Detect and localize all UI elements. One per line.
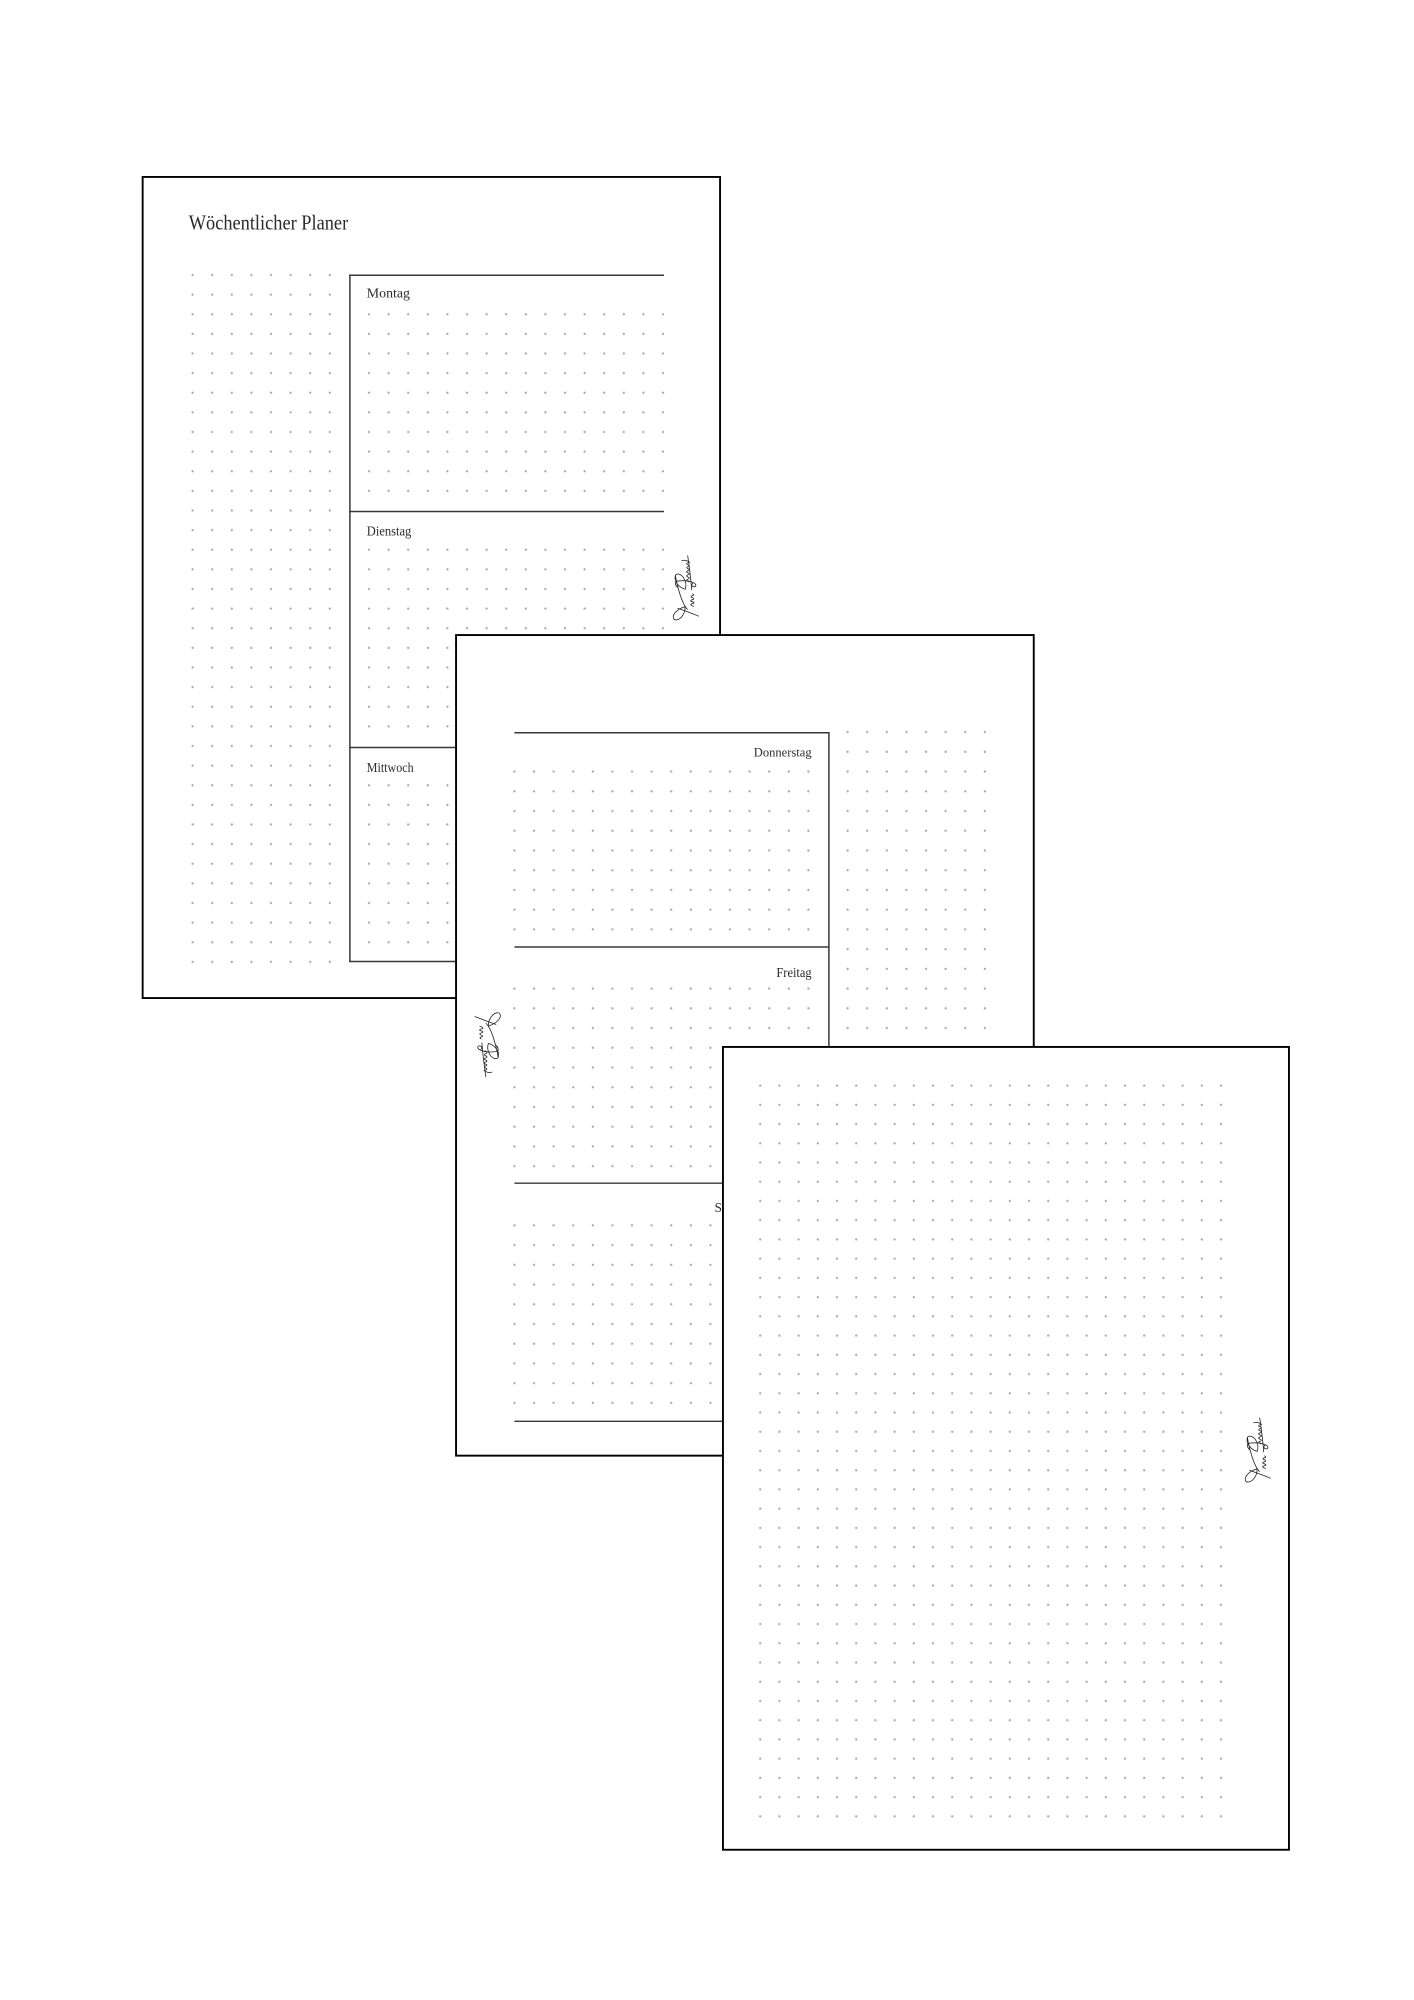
svg-text:Dienstag: Dienstag	[367, 525, 412, 540]
svg-text:Mittwoch: Mittwoch	[367, 761, 414, 776]
svg-text:Freitag: Freitag	[776, 966, 811, 981]
svg-text:Donnerstag: Donnerstag	[754, 745, 812, 760]
svg-text:Montag: Montag	[367, 287, 410, 302]
svg-text:Wöchentlicher Planer: Wöchentlicher Planer	[189, 210, 349, 234]
